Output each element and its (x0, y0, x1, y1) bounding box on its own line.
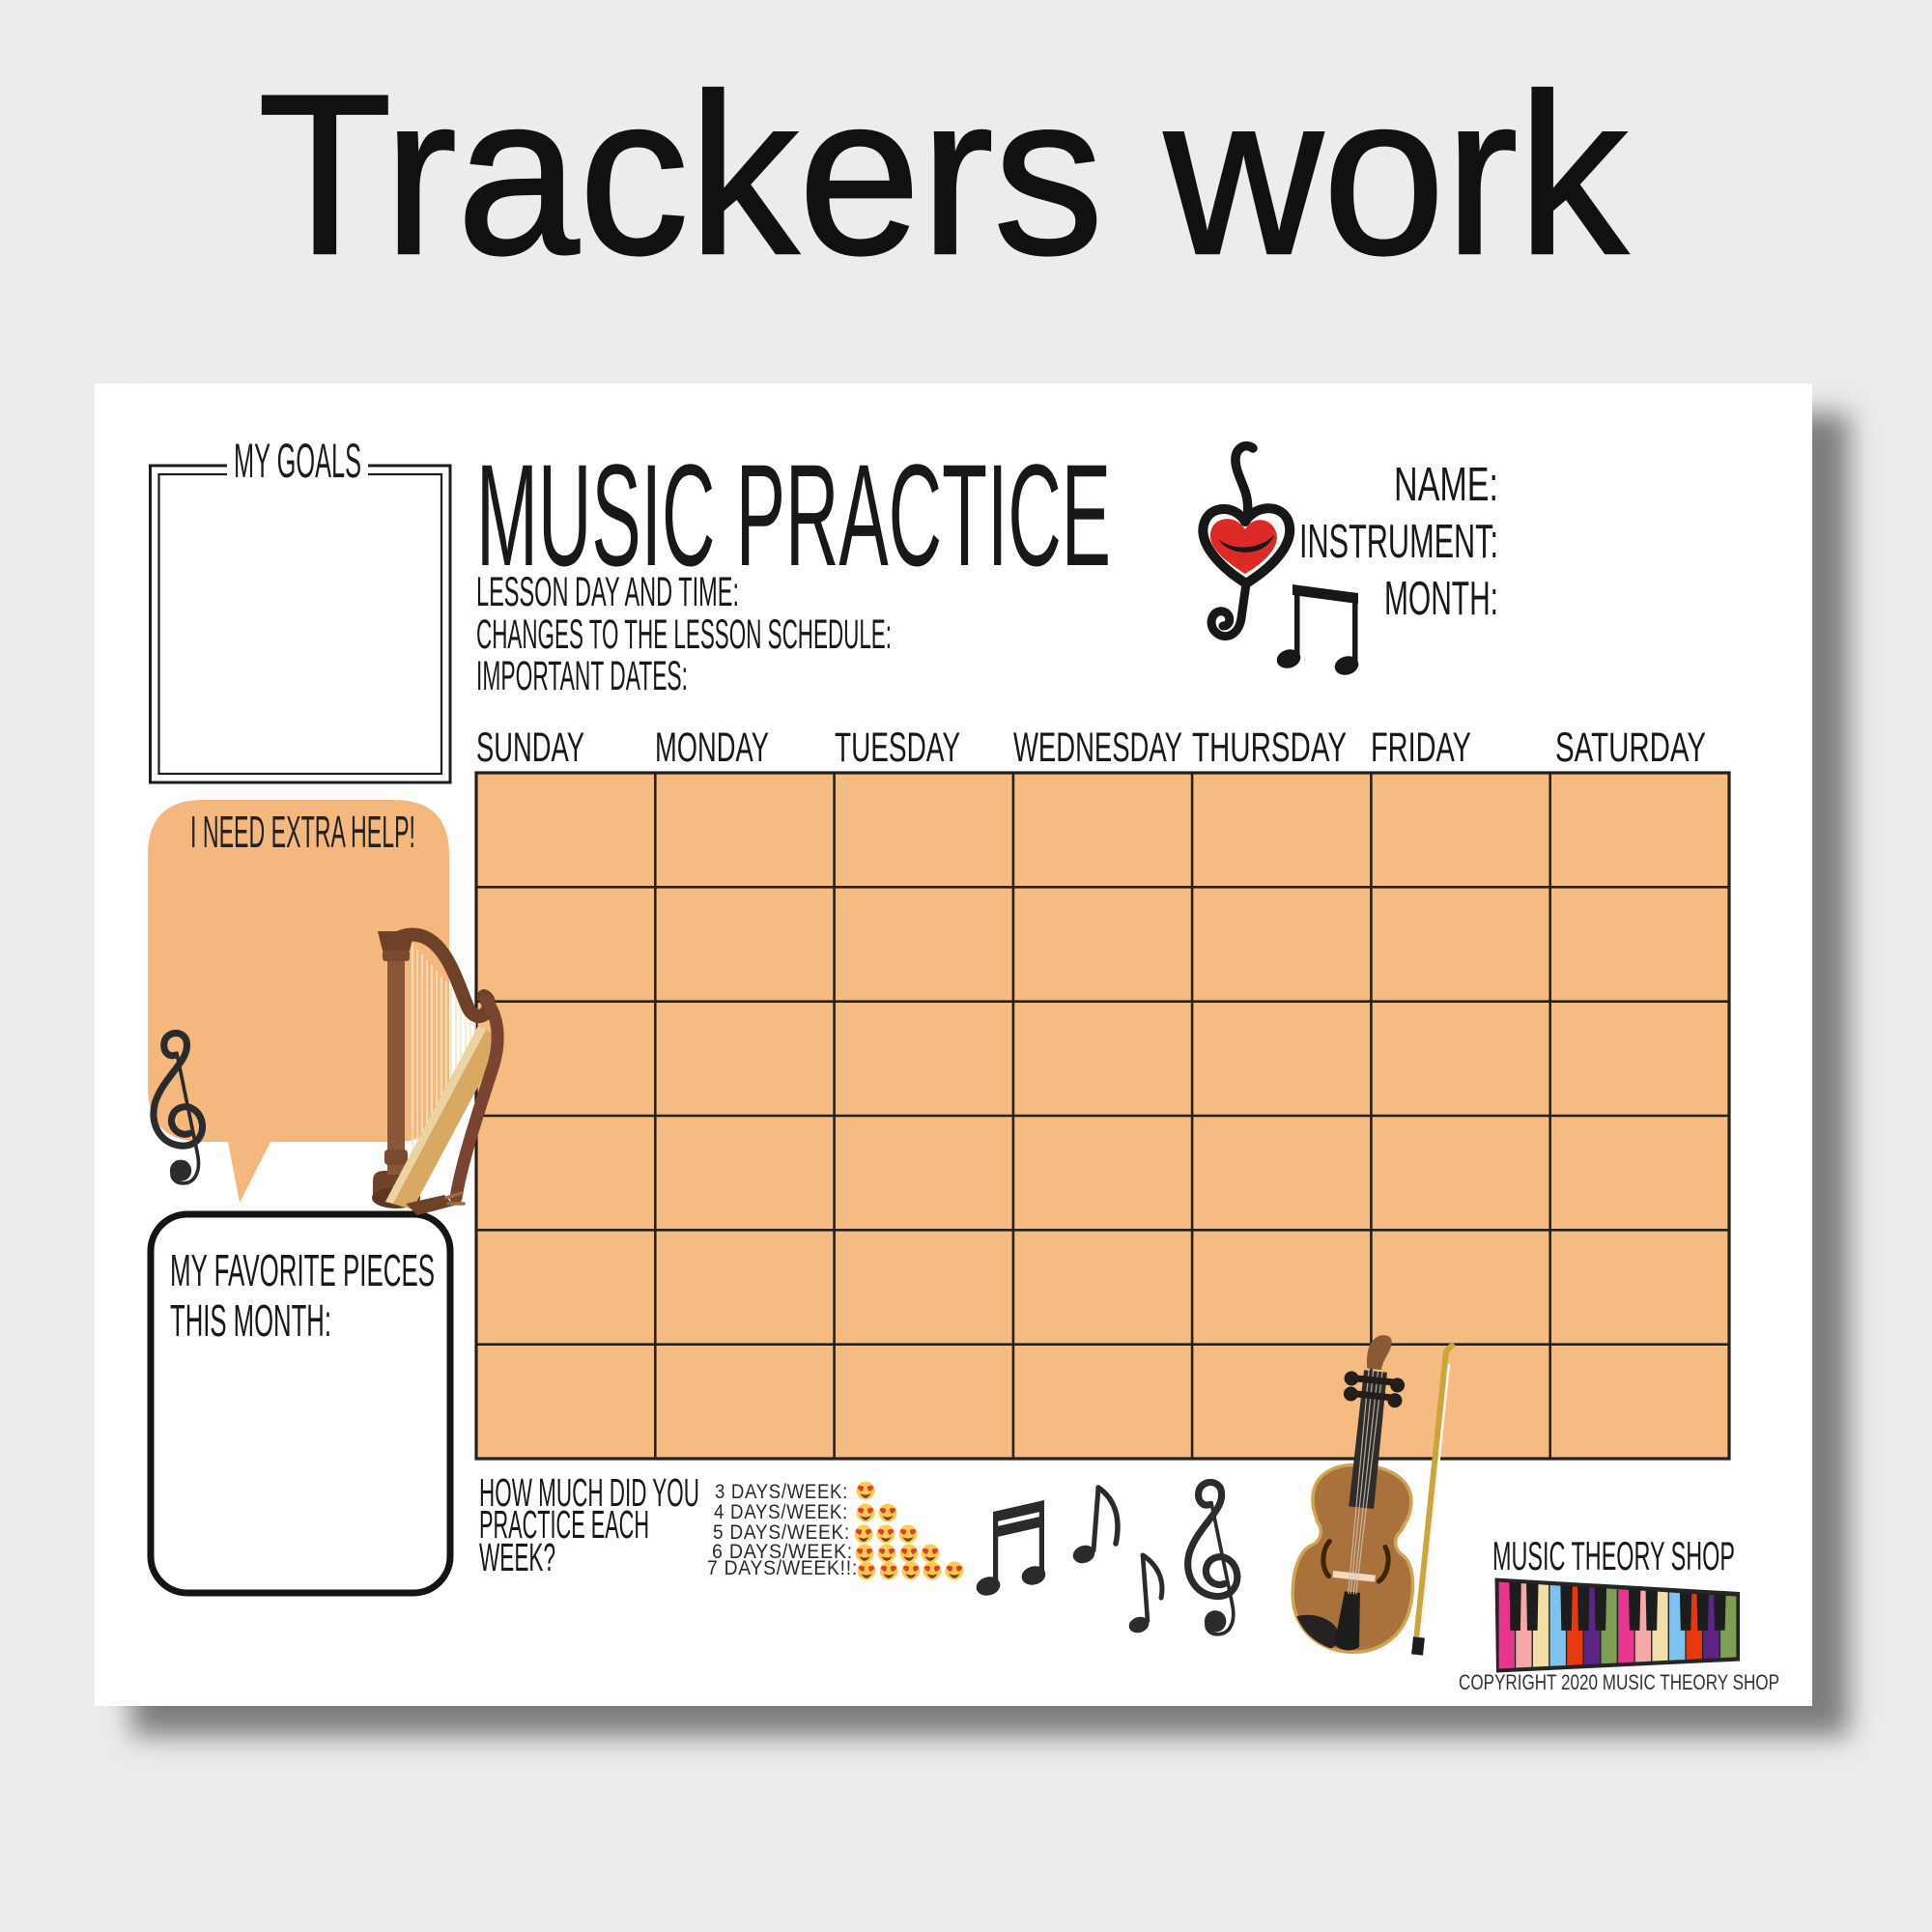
svg-text:LESSON DAY AND TIME:: LESSON DAY AND TIME: (476, 569, 739, 615)
svg-text:CHANGES TO THE LESSON SCHEDULE: CHANGES TO THE LESSON SCHEDULE: (476, 611, 892, 658)
svg-text:WEDNESDAY: WEDNESDAY (1013, 724, 1182, 771)
svg-text:NAME:: NAME: (1394, 459, 1498, 511)
svg-text:INSTRUMENT:: INSTRUMENT: (1299, 516, 1498, 568)
svg-text:FRIDAY: FRIDAY (1371, 724, 1471, 771)
svg-text:SATURDAY: SATURDAY (1555, 724, 1706, 771)
svg-text:IMPORTANT DATES:: IMPORTANT DATES: (476, 653, 688, 699)
svg-text:THIS MONTH:: THIS MONTH: (170, 1295, 331, 1346)
svg-text:COPYRIGHT 2020 MUSIC THEORY SH: COPYRIGHT 2020 MUSIC THEORY SHOP (1459, 1670, 1779, 1694)
svg-text:TUESDAY: TUESDAY (835, 724, 960, 771)
svg-text:MONDAY: MONDAY (655, 724, 769, 771)
svg-text:MUSIC THEORY SHOP: MUSIC THEORY SHOP (1492, 1533, 1735, 1578)
svg-text:MONTH:: MONTH: (1384, 573, 1498, 625)
svg-text:3 DAYS/WEEK:: 3 DAYS/WEEK: (715, 1481, 848, 1503)
svg-text:SUNDAY: SUNDAY (476, 724, 584, 771)
svg-text:7 DAYS/WEEK!!:: 7 DAYS/WEEK!!: (707, 1557, 858, 1579)
svg-text:4 DAYS/WEEK:: 4 DAYS/WEEK: (714, 1501, 848, 1523)
svg-text:THURSDAY: THURSDAY (1192, 724, 1347, 771)
svg-text:WEEK?: WEEK? (479, 1535, 555, 1579)
svg-text:MY FAVORITE PIECES: MY FAVORITE PIECES (170, 1245, 435, 1295)
svg-text:Trackers work: Trackers work (258, 47, 1629, 302)
svg-text:I NEED EXTRA HELP!: I NEED EXTRA HELP! (190, 807, 415, 857)
svg-text:MY GOALS: MY GOALS (234, 434, 361, 488)
